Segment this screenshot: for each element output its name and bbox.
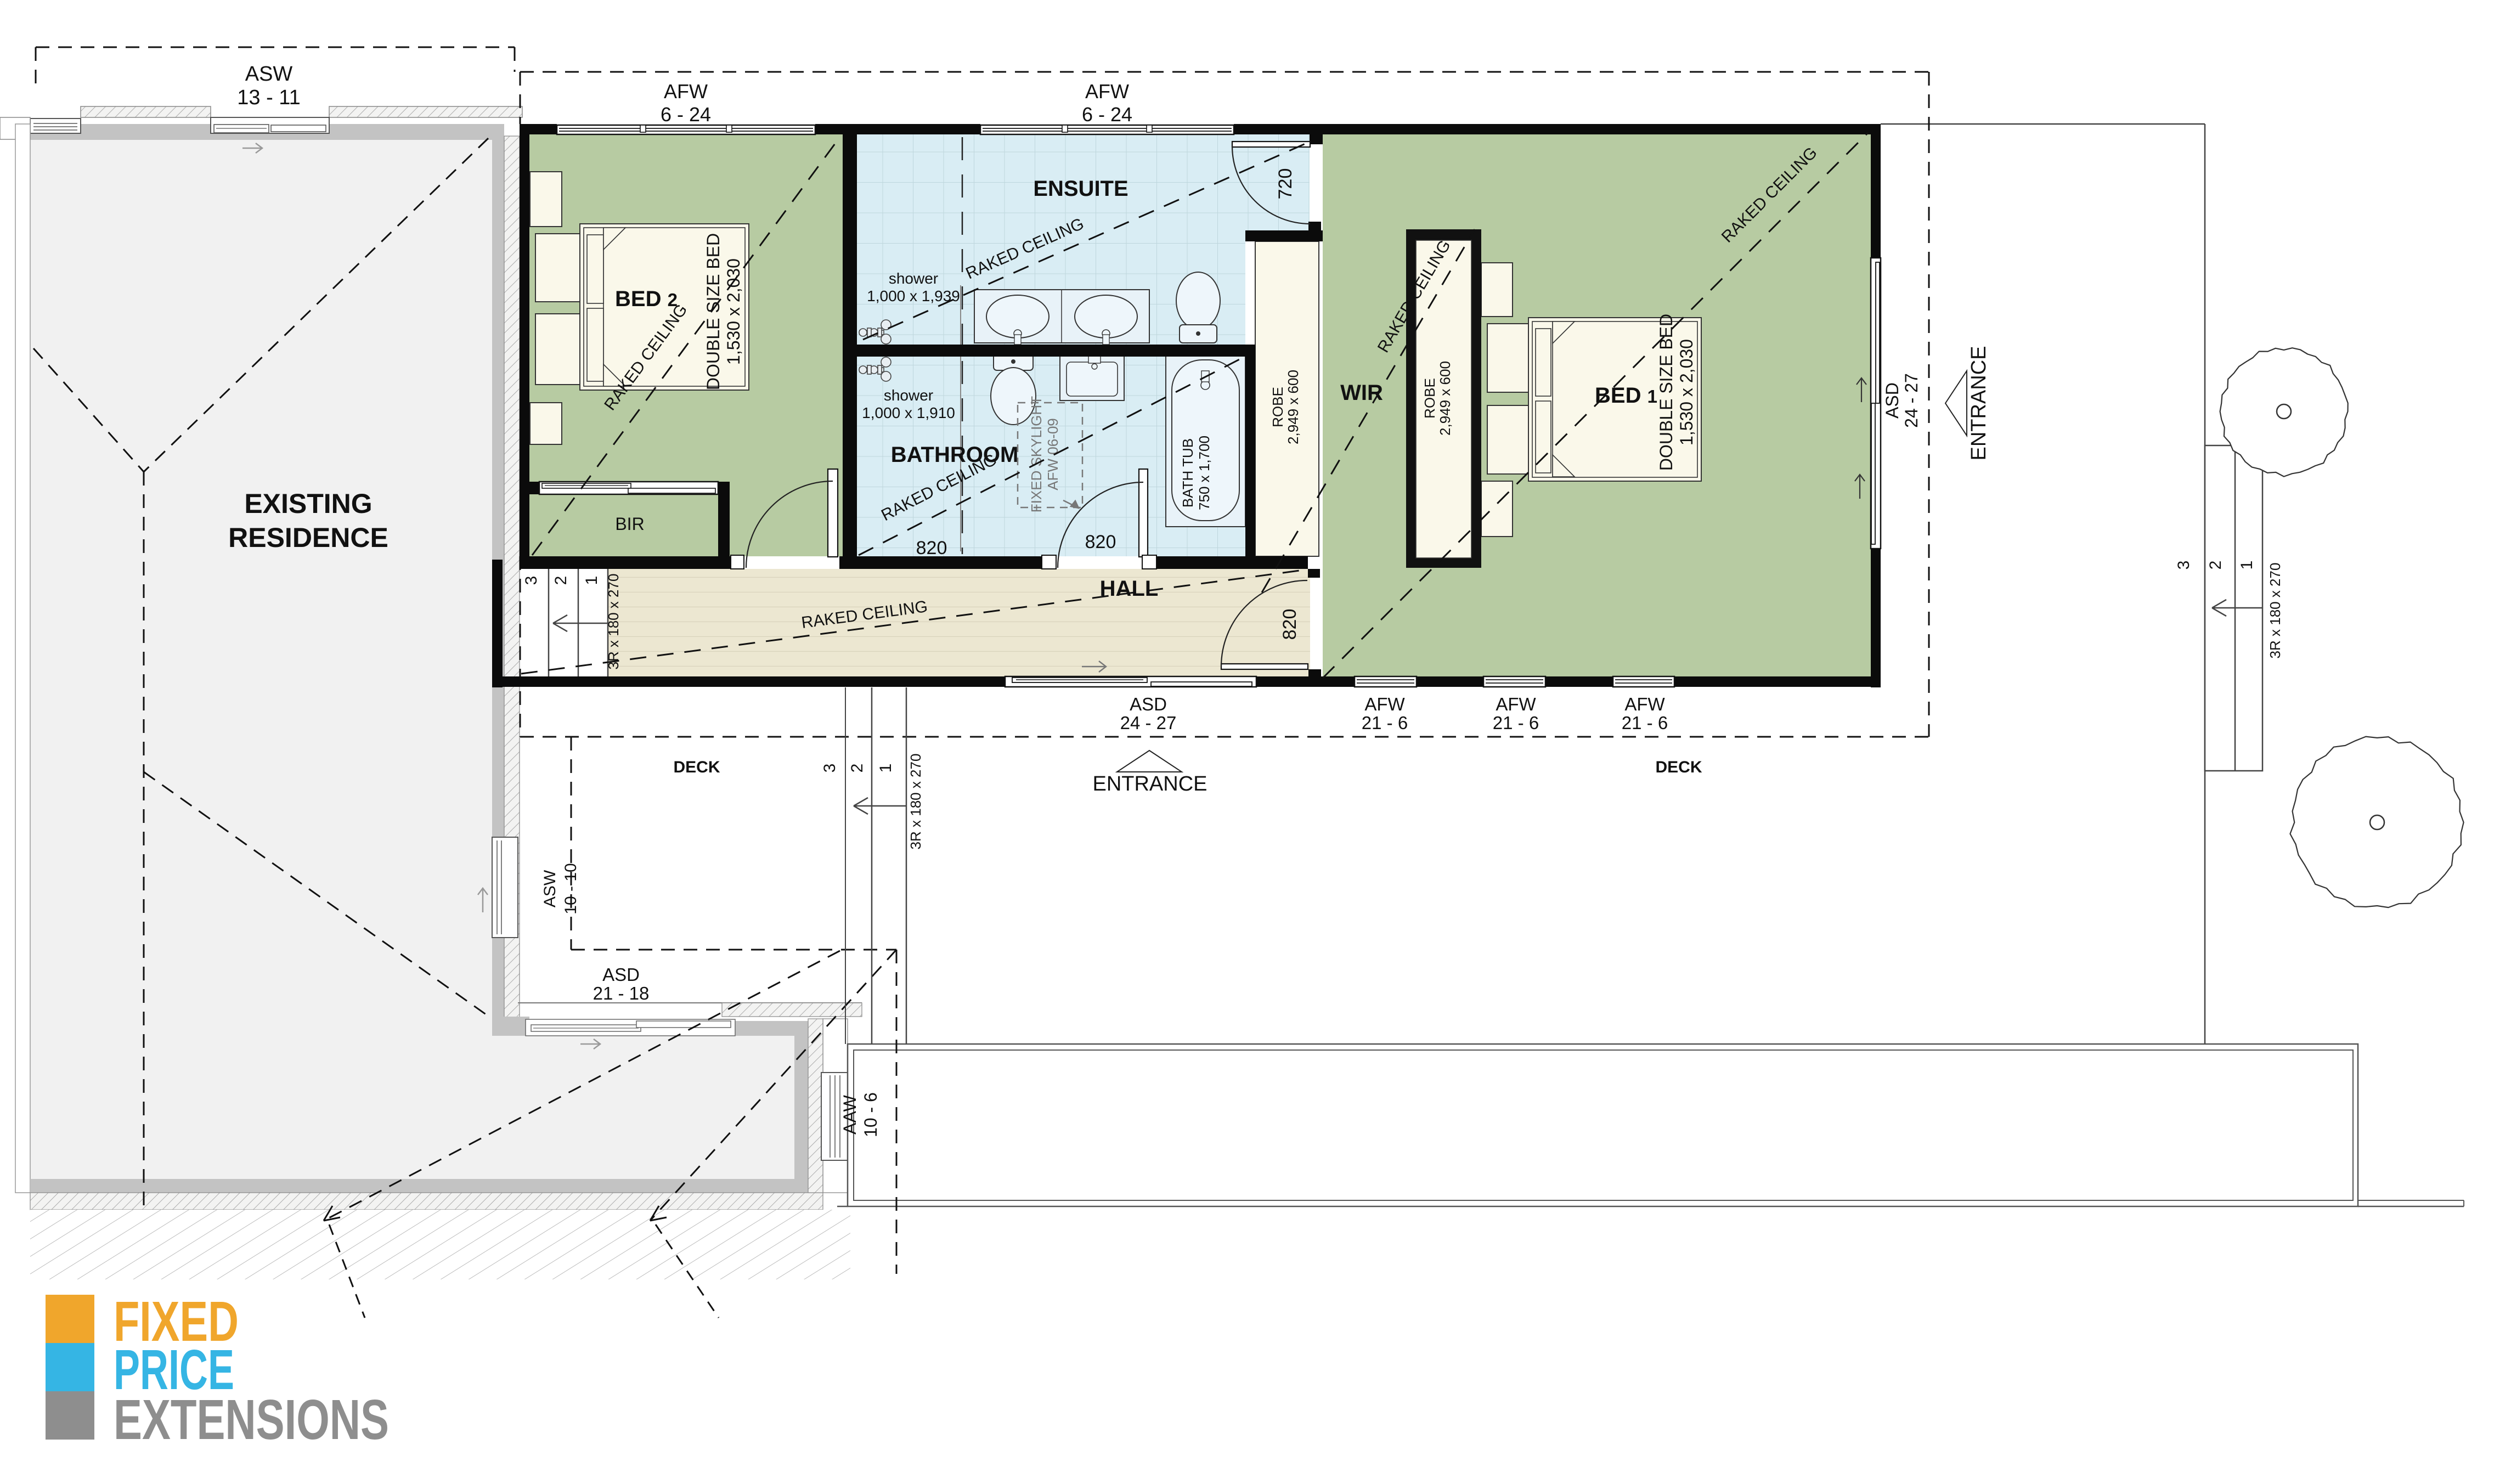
svg-text:1: 1 xyxy=(2238,561,2256,570)
svg-text:DECK: DECK xyxy=(1655,758,1702,776)
svg-text:2,949 x 600: 2,949 x 600 xyxy=(1437,361,1453,436)
svg-text:3R x 180 x 270: 3R x 180 x 270 xyxy=(907,754,924,850)
svg-text:1: 1 xyxy=(583,576,601,585)
svg-text:2: 2 xyxy=(552,576,570,585)
svg-text:6 - 24: 6 - 24 xyxy=(661,103,711,126)
svg-text:2: 2 xyxy=(848,764,866,773)
svg-text:2,949 x 600: 2,949 x 600 xyxy=(1285,370,1301,444)
svg-text:24 - 27: 24 - 27 xyxy=(1901,373,1921,428)
svg-text:AFW: AFW xyxy=(1496,694,1536,714)
svg-text:ENTRANCE: ENTRANCE xyxy=(1092,772,1207,795)
svg-text:AFW: AFW xyxy=(1364,694,1405,714)
svg-text:21 - 18: 21 - 18 xyxy=(593,983,650,1003)
svg-text:ASD: ASD xyxy=(602,964,640,985)
svg-text:AFW: AFW xyxy=(664,80,708,103)
svg-text:1,000 x 1,910: 1,000 x 1,910 xyxy=(862,404,955,421)
svg-text:AFW: AFW xyxy=(1085,80,1129,103)
svg-text:1,530 x 2,030: 1,530 x 2,030 xyxy=(1677,339,1696,445)
svg-text:ASD: ASD xyxy=(1882,382,1902,419)
svg-text:shower: shower xyxy=(889,270,938,287)
svg-text:2: 2 xyxy=(2207,561,2225,570)
svg-text:shower: shower xyxy=(884,387,933,404)
svg-text:820: 820 xyxy=(916,538,947,558)
svg-text:DOUBLE SIZE BED: DOUBLE SIZE BED xyxy=(703,233,723,390)
svg-text:ENTRANCE: ENTRANCE xyxy=(1967,346,1990,460)
svg-text:820: 820 xyxy=(1085,532,1116,552)
svg-text:FIXED SKYLIGHT: FIXED SKYLIGHT xyxy=(1028,396,1045,512)
svg-text:13 - 11: 13 - 11 xyxy=(237,86,300,109)
svg-text:RESIDENCE: RESIDENCE xyxy=(228,522,388,553)
svg-text:AAW: AAW xyxy=(840,1094,860,1135)
svg-text:820: 820 xyxy=(1279,609,1300,640)
svg-text:21 - 6: 21 - 6 xyxy=(1362,713,1408,733)
svg-text:HALL: HALL xyxy=(1100,577,1159,601)
svg-text:EXISTING: EXISTING xyxy=(244,488,372,519)
svg-text:AFW 06-09: AFW 06-09 xyxy=(1045,418,1061,490)
svg-text:21 - 6: 21 - 6 xyxy=(1622,713,1668,733)
svg-text:WIR: WIR xyxy=(1340,381,1383,405)
svg-text:DECK: DECK xyxy=(673,758,720,776)
svg-text:750 x 1,700: 750 x 1,700 xyxy=(1196,436,1212,510)
svg-text:ASD: ASD xyxy=(1130,694,1167,714)
svg-text:ROBE: ROBE xyxy=(1421,378,1438,419)
svg-text:1: 1 xyxy=(877,764,895,773)
svg-text:1,530 x 2,030: 1,530 x 2,030 xyxy=(724,258,743,365)
svg-text:10 - 6: 10 - 6 xyxy=(861,1092,881,1137)
svg-text:BIR: BIR xyxy=(615,514,644,534)
svg-text:720: 720 xyxy=(1275,168,1296,200)
svg-text:3R x 180 x 270: 3R x 180 x 270 xyxy=(2267,563,2283,659)
svg-text:3: 3 xyxy=(821,764,839,773)
svg-text:EXTENSIONS: EXTENSIONS xyxy=(114,1388,389,1451)
svg-text:24 - 27: 24 - 27 xyxy=(1120,713,1177,733)
svg-text:BATHROOM: BATHROOM xyxy=(891,443,1019,467)
svg-text:3: 3 xyxy=(2175,561,2193,570)
svg-text:ASW: ASW xyxy=(541,870,559,907)
svg-text:3: 3 xyxy=(522,576,540,585)
svg-text:BED 2: BED 2 xyxy=(615,287,678,311)
svg-text:6 - 24: 6 - 24 xyxy=(1082,103,1132,126)
svg-text:ASW: ASW xyxy=(245,63,293,86)
svg-text:3R x 180 x 270: 3R x 180 x 270 xyxy=(605,574,622,670)
svg-text:21 - 6: 21 - 6 xyxy=(1493,713,1539,733)
svg-text:BATH TUB: BATH TUB xyxy=(1180,438,1196,507)
svg-text:1,000 x 1,939: 1,000 x 1,939 xyxy=(867,287,960,304)
svg-text:ROBE: ROBE xyxy=(1269,387,1286,427)
svg-text:DOUBLE SIZE BED: DOUBLE SIZE BED xyxy=(1656,314,1676,471)
svg-text:BED 1: BED 1 xyxy=(1595,383,1657,408)
svg-text:AFW: AFW xyxy=(1624,694,1665,714)
svg-text:ENSUITE: ENSUITE xyxy=(1033,177,1128,201)
